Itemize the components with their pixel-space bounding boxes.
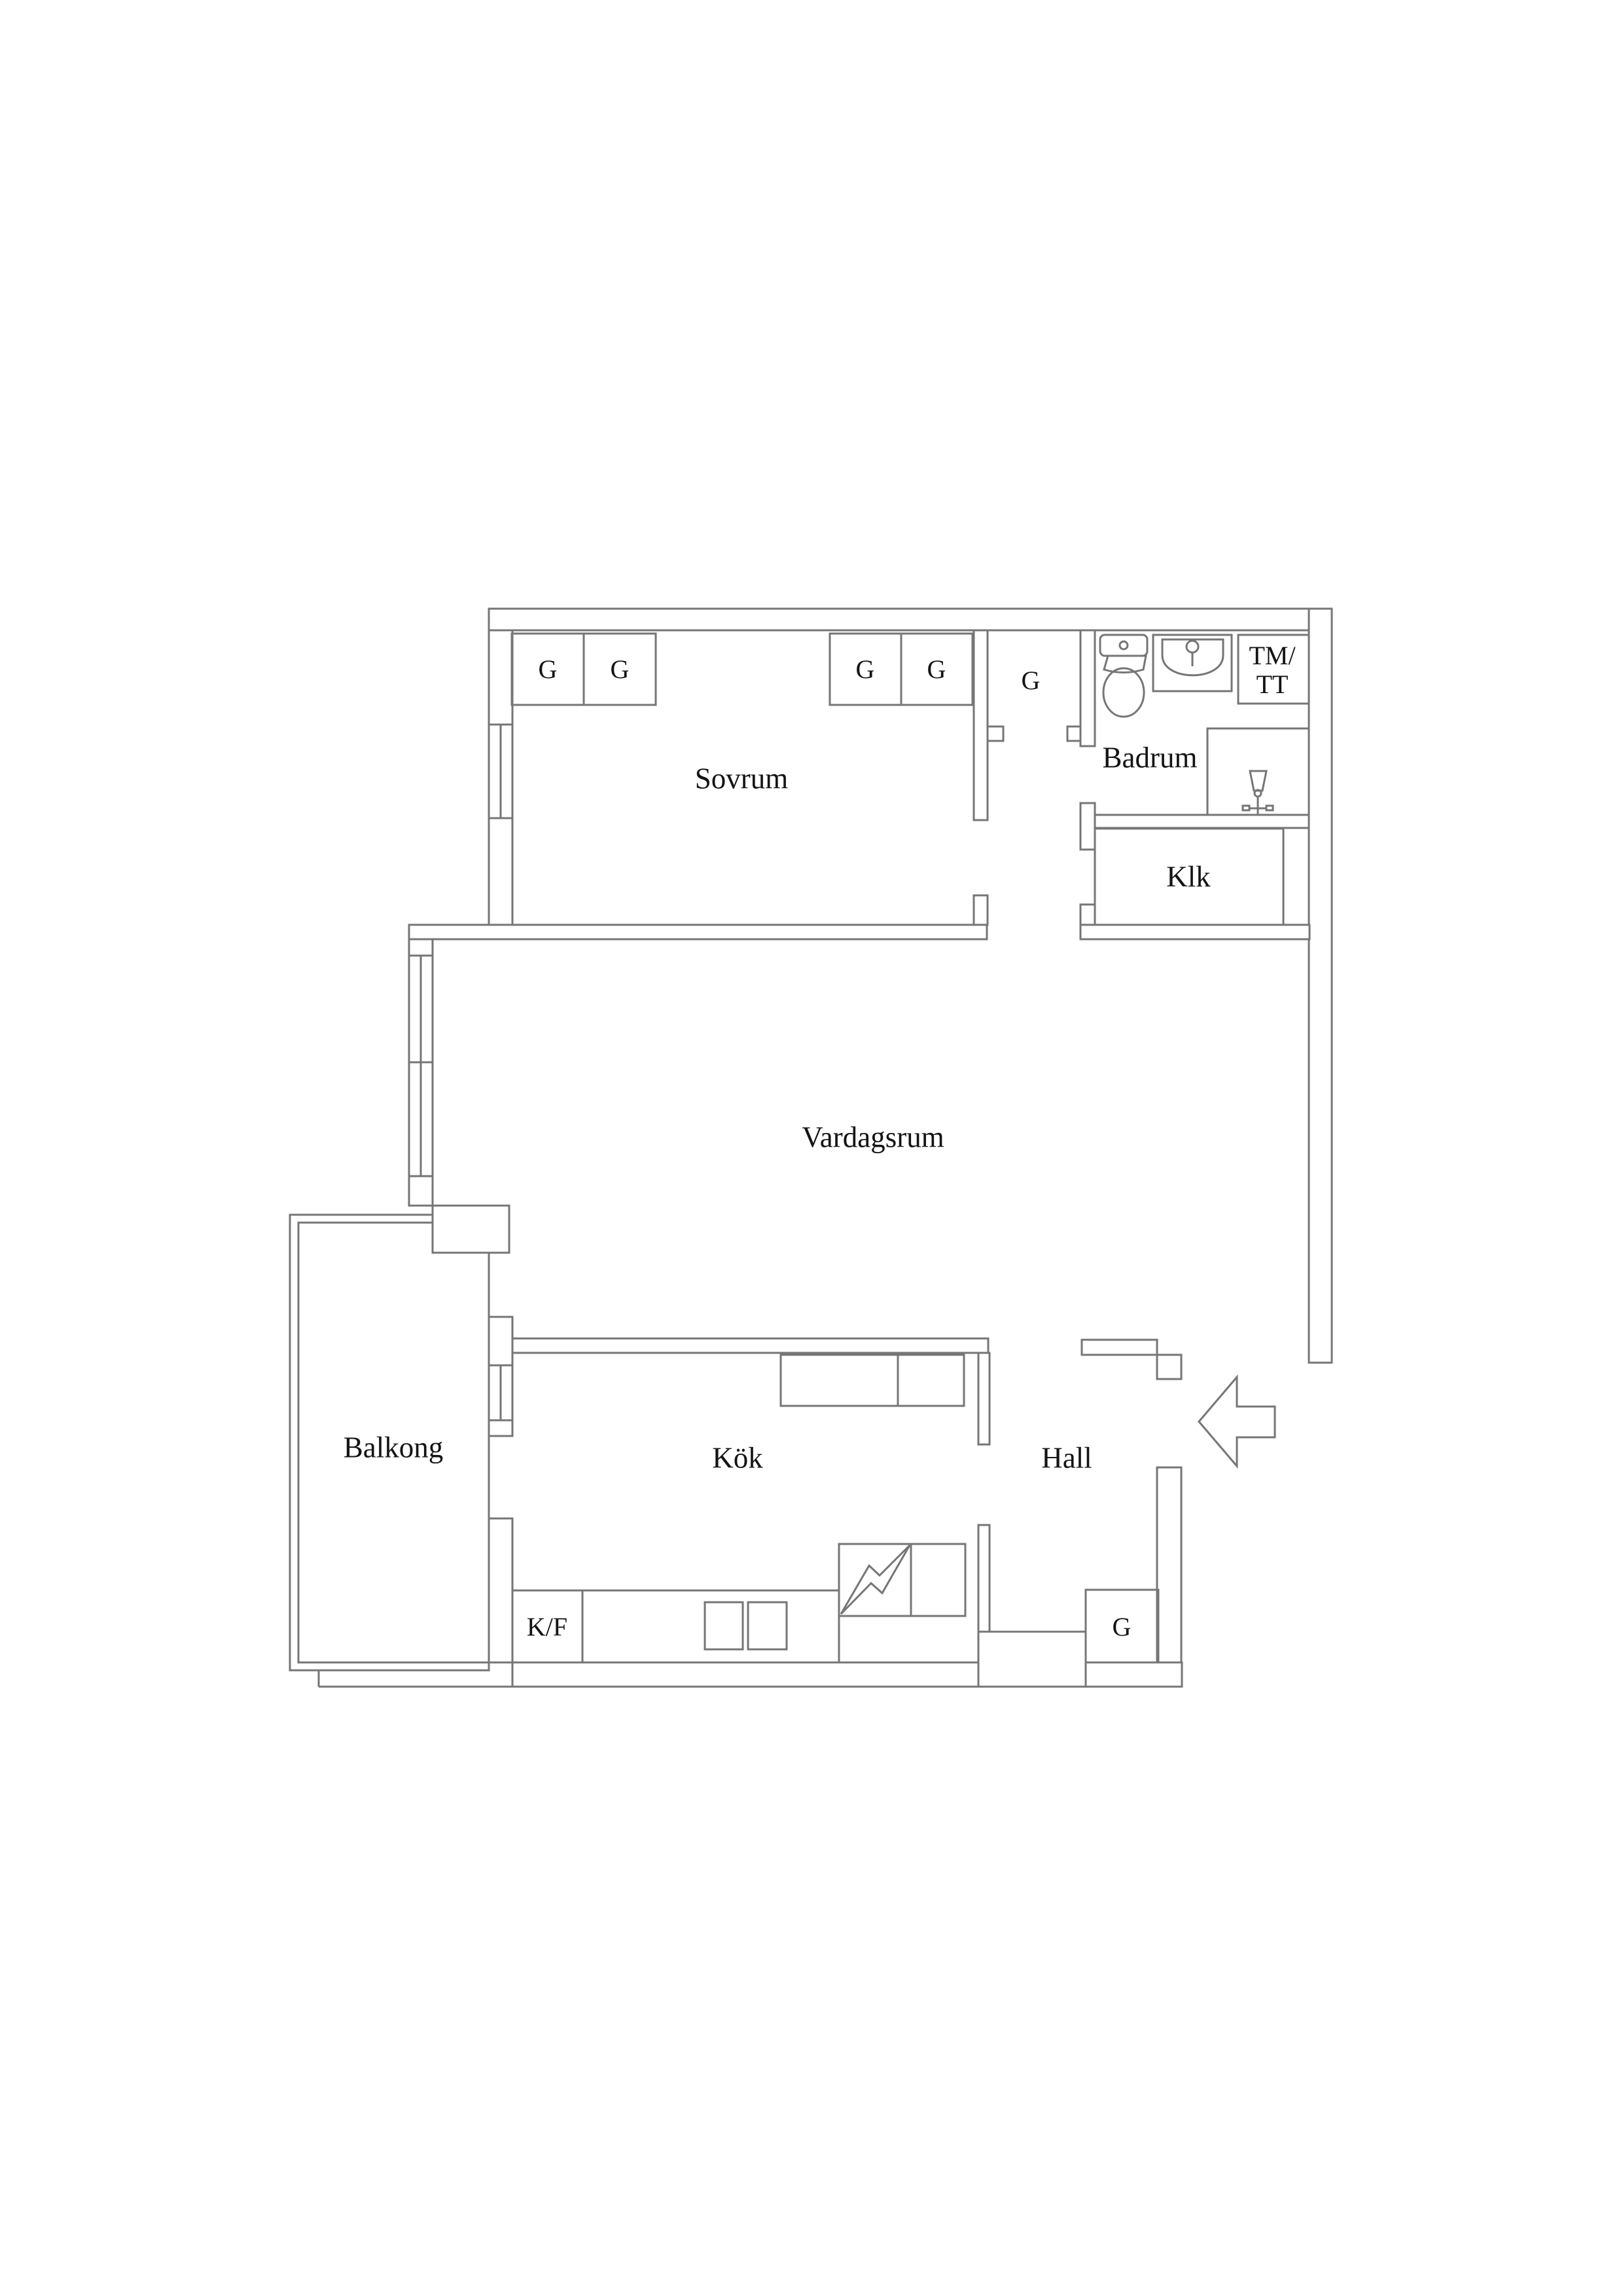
wardrobe-label-4: G [927, 655, 946, 684]
wall-kok-west-b [489, 1420, 512, 1436]
wardrobe-label-2: G [611, 655, 630, 684]
sink-basin-1 [705, 1602, 743, 1649]
washer-label: TM/ [1249, 641, 1295, 670]
door-jamb-sovrum [974, 895, 988, 925]
wall-kok-west-a [489, 1317, 512, 1365]
wall-closet-room-west [974, 630, 988, 820]
sink-icon [1153, 635, 1232, 691]
washer-dryer-label: TM/ TT [1249, 641, 1295, 699]
wardrobe-label-3: G [856, 655, 875, 684]
toilet-icon [1100, 635, 1147, 717]
room-label-hall: Hall [1041, 1442, 1092, 1475]
entry-door-jamb-top [1157, 1355, 1181, 1379]
wardrobe-label-1: G [539, 655, 558, 684]
wardrobe-label-6: G [1113, 1613, 1132, 1641]
wall-badrum-west-b [1080, 803, 1095, 850]
wardrobe-label-5: G [1022, 666, 1041, 695]
room-label-balkong: Balkong [344, 1431, 444, 1464]
kitchen-counter-upper [781, 1355, 964, 1406]
window-kok [489, 1365, 512, 1420]
oven-box [911, 1544, 965, 1616]
wall-hall-north [1082, 1340, 1157, 1355]
wall-bottom-a [512, 1662, 978, 1687]
room-label-klk: Klk [1166, 861, 1211, 893]
room-label-badrum: Badrum [1103, 742, 1198, 774]
wall-vardagsrum-west-b [409, 1176, 433, 1206]
wall-kok-hall-divider-a [978, 1353, 990, 1444]
wall-top [489, 609, 1332, 630]
stove-lightning-icon [841, 1545, 910, 1614]
room-label-sovrum: Sovrum [695, 762, 789, 795]
wall-badrum-west-a [1080, 630, 1095, 746]
fridge-freezer-label: K/F [527, 1613, 567, 1641]
shower-mixer-icon [1243, 771, 1273, 814]
wall-sovrum-west-b [489, 818, 512, 925]
wall-vardagsrum-west-a [409, 939, 433, 956]
wall-hall-south-thick [978, 1632, 1086, 1687]
wall-sovrum-south [409, 925, 987, 939]
window-sovrum [489, 725, 512, 818]
wall-right-upper [1309, 609, 1332, 1363]
wall-sovrum-west-a [489, 630, 512, 725]
wall-badrum-south [1095, 815, 1309, 828]
window-vardagsrum [409, 956, 433, 1176]
floor-plan: Sovrum Vardagsrum Balkong Kök Hall Badru… [0, 0, 1623, 2296]
door-jamb-closet-room-left [988, 726, 1003, 741]
wall-bottom-b [1086, 1662, 1182, 1687]
wall-kok-hall-divider-b [978, 1525, 990, 1632]
wall-kok-west-c [489, 1518, 512, 1662]
room-label-vardagsrum: Vardagsrum [802, 1121, 944, 1154]
wall-jog-balcony [433, 1206, 509, 1253]
dryer-label: TT [1249, 670, 1295, 699]
sink-basin-2 [748, 1602, 787, 1649]
wall-klk-south [1080, 925, 1310, 939]
entrance-arrow-icon [1199, 1377, 1275, 1466]
wall-hall-east [1157, 1467, 1181, 1687]
door-jamb-closet-room-right [1067, 726, 1080, 741]
room-label-kok: Kök [712, 1442, 763, 1475]
wall-kok-north [512, 1338, 988, 1353]
